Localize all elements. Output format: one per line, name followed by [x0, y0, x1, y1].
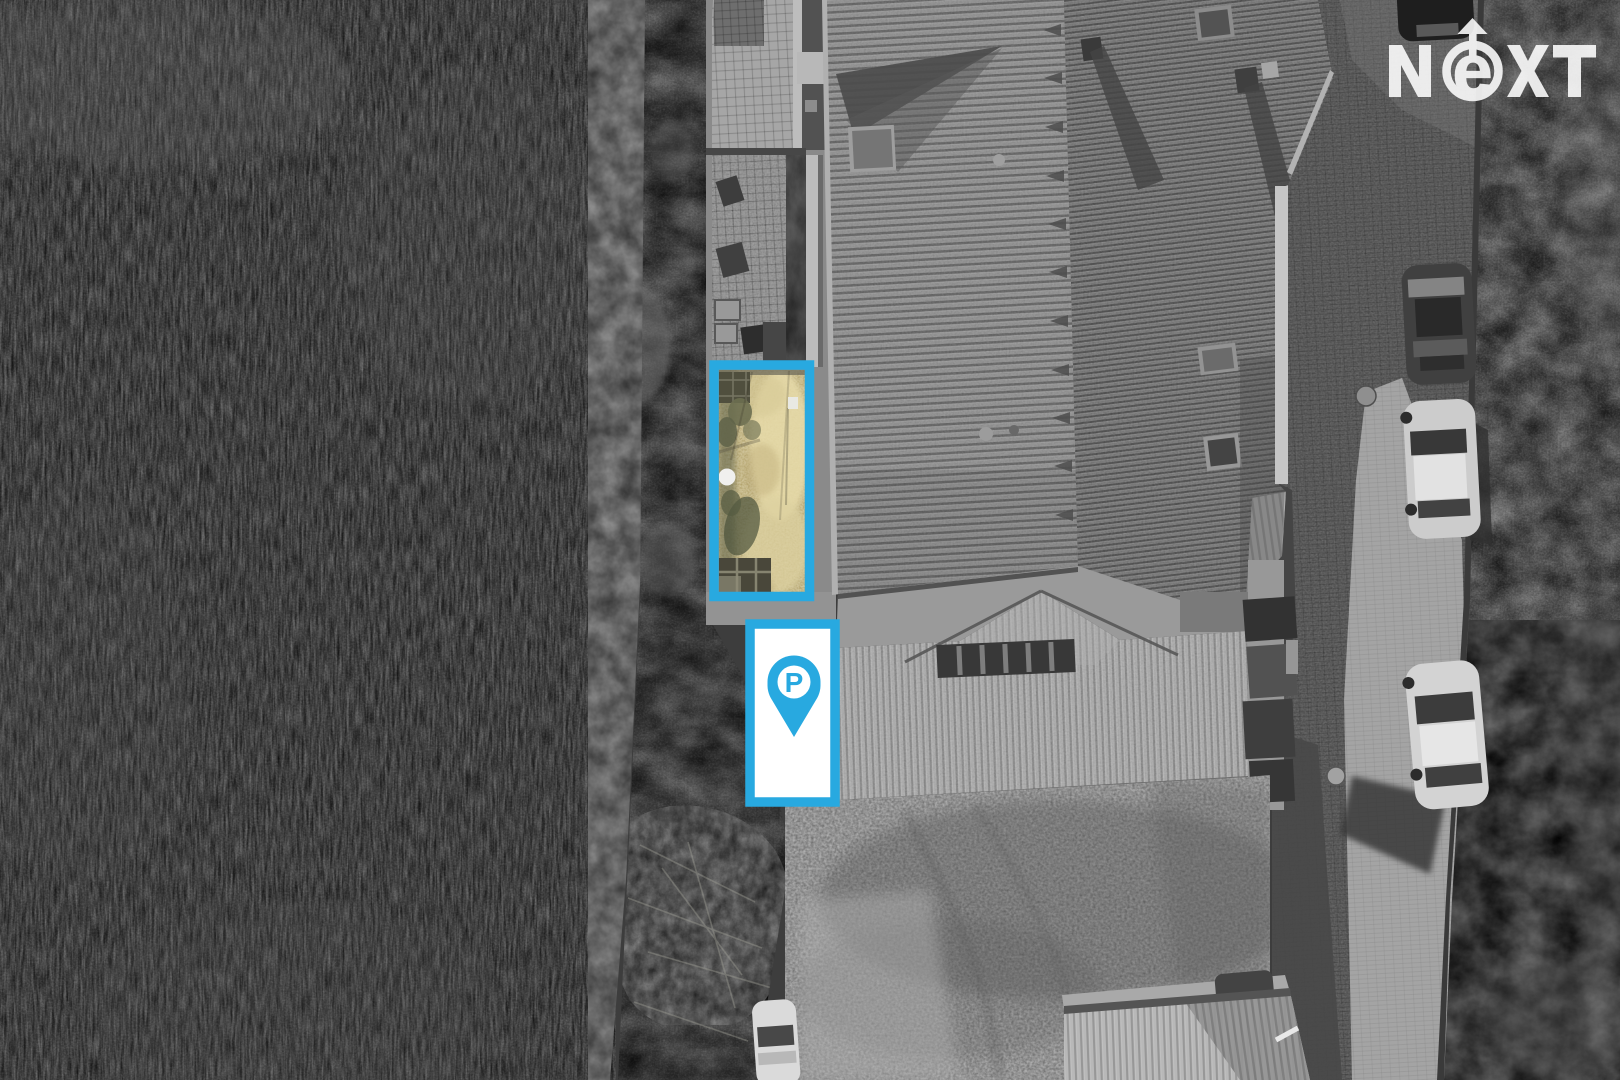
svg-text:P: P [785, 667, 804, 698]
